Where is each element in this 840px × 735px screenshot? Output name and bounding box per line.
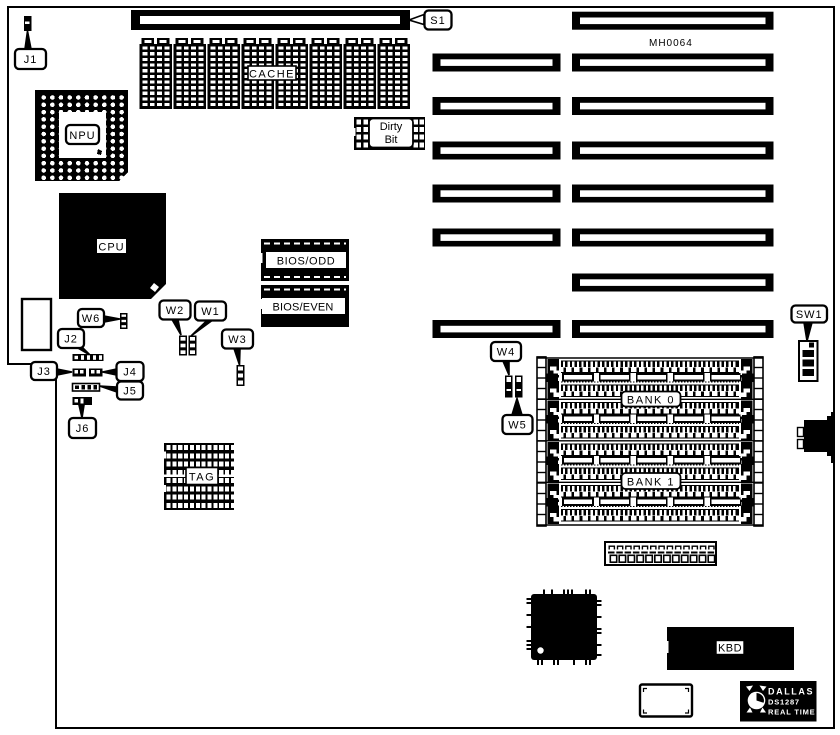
svg-text:TAG: TAG <box>189 472 215 484</box>
svg-text:BANK 1: BANK 1 <box>627 477 675 489</box>
svg-text:Bit: Bit <box>385 134 398 146</box>
svg-text:MH0064: MH0064 <box>649 38 693 49</box>
svg-text:J3: J3 <box>37 366 51 378</box>
svg-text:W3: W3 <box>228 334 247 346</box>
svg-text:W5: W5 <box>508 420 527 432</box>
svg-text:W4: W4 <box>497 347 516 359</box>
svg-text:BIOS/EVEN: BIOS/EVEN <box>272 302 333 314</box>
svg-text:W1: W1 <box>201 306 220 318</box>
svg-text:KBD: KBD <box>718 643 742 655</box>
svg-text:W6: W6 <box>82 313 101 325</box>
svg-text:NPU: NPU <box>69 130 95 142</box>
svg-text:J5: J5 <box>123 386 137 398</box>
svg-text:J2: J2 <box>64 334 78 346</box>
svg-text:J4: J4 <box>123 367 137 379</box>
svg-text:J1: J1 <box>24 54 38 66</box>
svg-text:BANK 0: BANK 0 <box>627 395 675 407</box>
svg-text:W2: W2 <box>166 305 185 317</box>
svg-text:J6: J6 <box>76 423 90 435</box>
svg-text:CACHE: CACHE <box>249 69 295 81</box>
svg-text:DALLAS: DALLAS <box>768 687 814 697</box>
svg-text:BIOS/ODD: BIOS/ODD <box>277 256 336 268</box>
svg-text:REAL TIME: REAL TIME <box>768 708 815 717</box>
svg-text:Dirty: Dirty <box>380 121 403 133</box>
svg-text:DS1287: DS1287 <box>768 698 800 707</box>
svg-text:SW1: SW1 <box>796 309 823 321</box>
svg-text:S1: S1 <box>430 15 445 27</box>
svg-text:CPU: CPU <box>98 242 124 254</box>
